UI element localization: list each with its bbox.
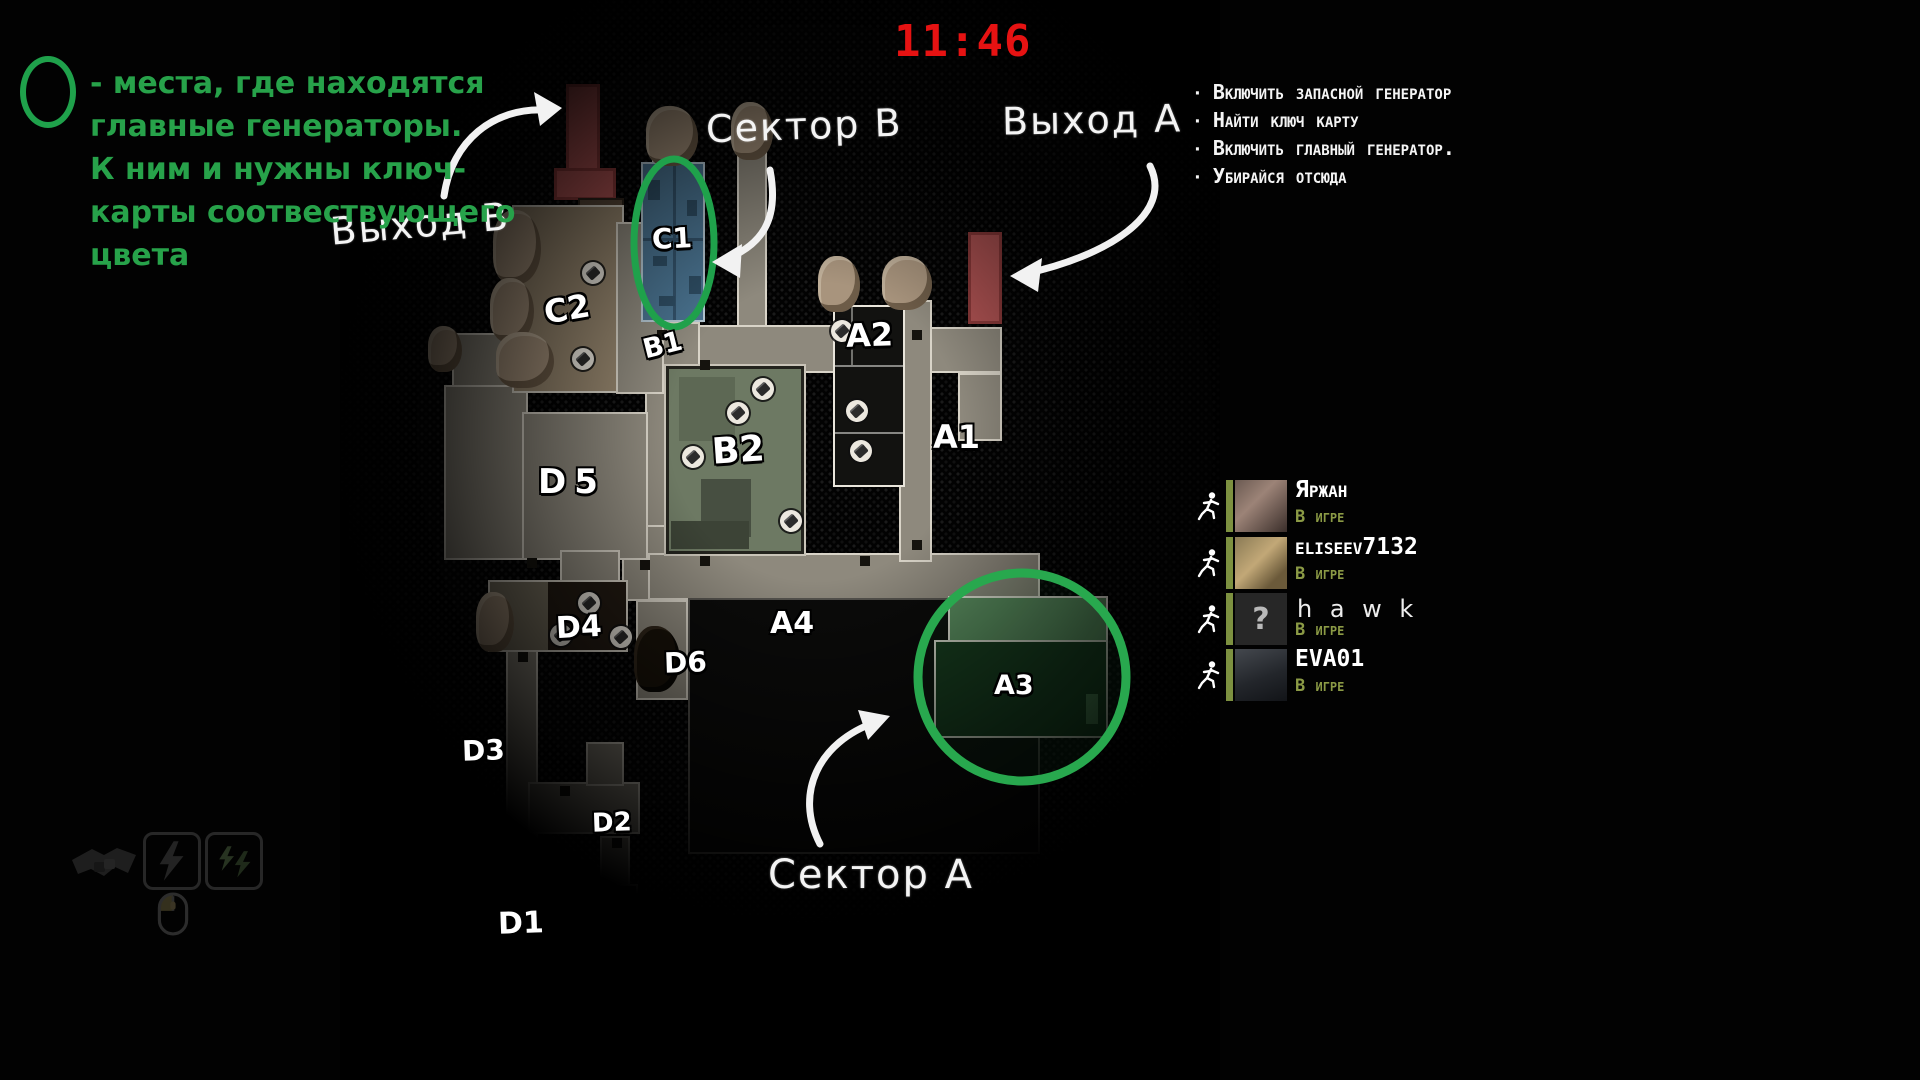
double-spark-ability-icon [205, 832, 263, 890]
room-label-c1: C1 [651, 221, 693, 256]
player-row: EVA01 В игре [1197, 649, 1537, 701]
legend-line: главные генераторы. [90, 105, 515, 148]
player-row: eliseev7132 В игре [1197, 537, 1537, 589]
player-status-bar [1226, 480, 1233, 532]
player-status: В игре [1295, 676, 1344, 696]
room-label-d2: D2 [591, 807, 632, 838]
match-timer: 11:46 [894, 16, 1031, 67]
room-label-a1: A1 [933, 418, 980, 456]
legend-line: К ним и нужны ключ- [90, 148, 515, 191]
lightning-ability-icon [143, 832, 201, 890]
sector-a-label: Сектор A [768, 852, 974, 898]
room-label-d5: D5 [538, 462, 606, 502]
legend-text: - места, где находятся главные генератор… [90, 62, 515, 277]
avatar [1235, 649, 1287, 701]
objective-item: ·Найти ключ карту [1192, 108, 1455, 136]
question-mark-avatar: ? [1235, 593, 1287, 645]
avatar [1235, 537, 1287, 589]
exit-a-label: Выход A [1002, 96, 1183, 143]
mouse-hint-icon [157, 892, 189, 936]
objective-bullet: · [1192, 167, 1203, 188]
game-screen: C1 C2 B1 B2 A1 A2 A3 A4 D1 D2 D3 D4 D5 D… [0, 0, 1920, 1080]
room-label-a4: A4 [770, 606, 814, 641]
objective-item: ·Включить запасной генератор [1192, 80, 1455, 108]
room-label-d3: D3 [461, 733, 505, 767]
avatar [1235, 480, 1287, 532]
runner-icon [1197, 660, 1221, 690]
player-name: h a w k [1297, 595, 1418, 623]
player-row: Яржан В игре [1197, 480, 1537, 532]
room-label-d6: D6 [663, 645, 707, 679]
objective-item: ·Включить главный генератор. [1192, 136, 1455, 164]
runner-icon [1197, 604, 1221, 634]
sector-b-label: Сектор B [705, 101, 903, 152]
objective-bullet: · [1192, 111, 1203, 132]
runner-icon [1197, 548, 1221, 578]
handshake-icon [70, 842, 138, 888]
legend-line: цвета [90, 234, 515, 277]
room-label-d1: D1 [497, 905, 544, 942]
room-label-a3: A3 [994, 670, 1034, 701]
player-status: В игре [1295, 507, 1344, 527]
player-status: В игре [1295, 620, 1344, 640]
player-status-bar [1226, 537, 1233, 589]
legend-line: карты соотвествующего [90, 191, 515, 234]
objective-bullet: · [1192, 83, 1203, 104]
room-label-a2: A2 [845, 315, 893, 355]
objectives-list: ·Включить запасной генератор ·Найти ключ… [1192, 80, 1455, 192]
player-status-bar [1226, 593, 1233, 645]
player-name: Яржан [1295, 477, 1347, 503]
objective-item: ·Убирайся отсюда [1192, 164, 1455, 192]
legend-generator-circle-icon [20, 56, 76, 128]
player-status: В игре [1295, 564, 1344, 584]
room-label-d4: D4 [555, 609, 603, 646]
player-row: ? h a w k В игре [1197, 593, 1537, 645]
player-name: eliseev7132 [1295, 534, 1418, 560]
legend-line: - места, где находятся [90, 62, 515, 105]
player-name: EVA01 [1295, 646, 1364, 672]
objective-bullet: · [1192, 139, 1203, 160]
room-label-c2: C2 [541, 286, 593, 331]
runner-icon [1197, 491, 1221, 521]
player-status-bar [1226, 649, 1233, 701]
room-label-b2: B2 [711, 428, 766, 473]
